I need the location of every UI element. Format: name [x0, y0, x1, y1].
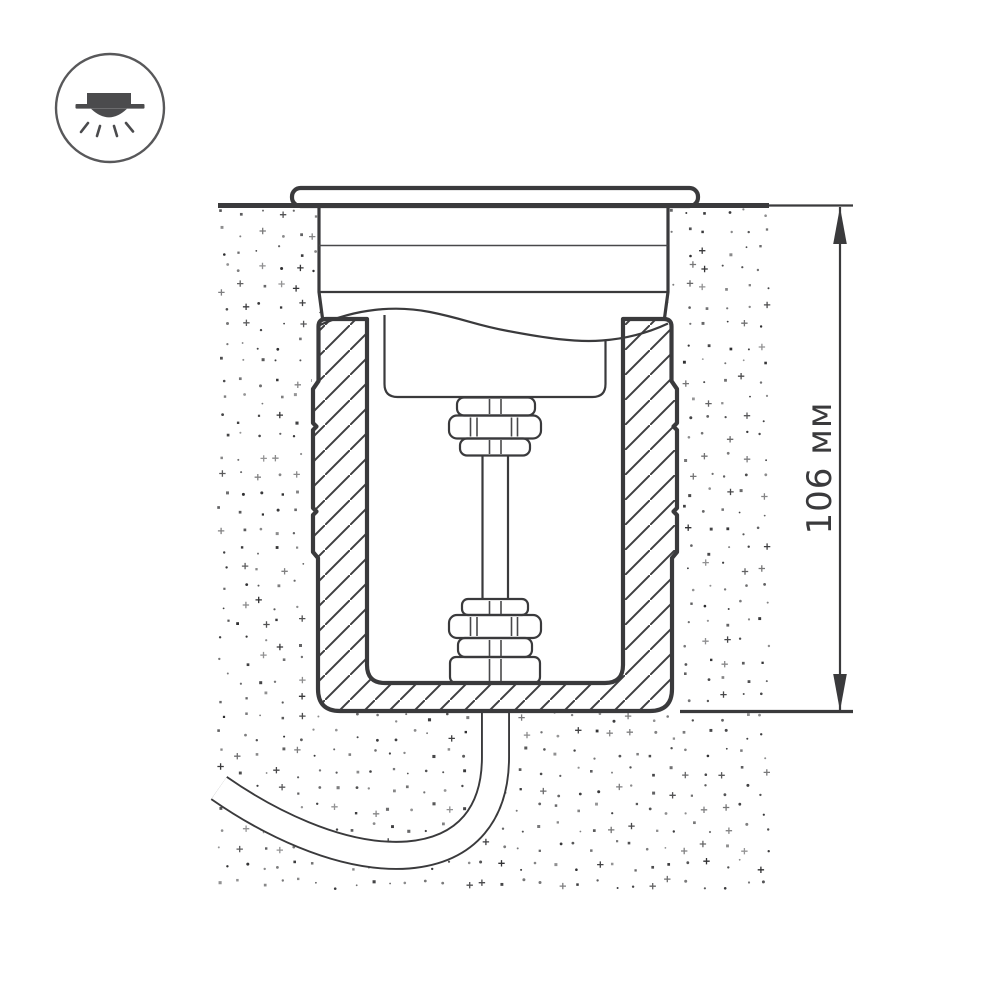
- installation-diagram-page: 106 мм: [0, 0, 1000, 1000]
- supply-cable: [219, 698, 496, 855]
- dimension-label: 106 мм: [800, 401, 840, 534]
- icon-fixture-body: [87, 93, 131, 105]
- icon-surface-bar: [76, 104, 145, 109]
- diagram-svg: 106 мм: [0, 0, 1000, 1000]
- dimension-arrow-bottom: [833, 674, 847, 711]
- dimension-arrow-top: [833, 207, 847, 244]
- dimension-callout: 106 мм: [680, 207, 853, 712]
- fixture-body: [319, 206, 668, 322]
- recessed-downlight-icon: [56, 54, 164, 162]
